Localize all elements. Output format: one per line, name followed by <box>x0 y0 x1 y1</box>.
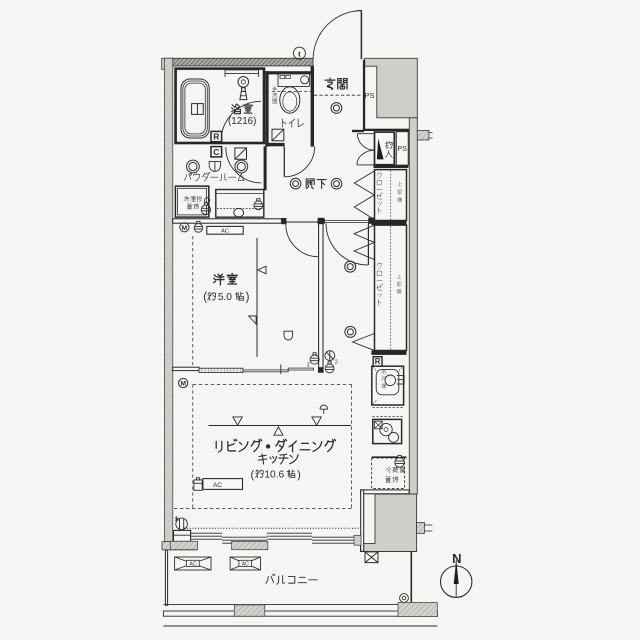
svg-text:AC: AC <box>221 229 229 235</box>
svg-text:M: M <box>182 225 188 232</box>
svg-text:AC: AC <box>213 482 222 489</box>
svg-text:(1216): (1216) <box>228 116 256 127</box>
svg-text:): ) <box>297 469 301 481</box>
svg-text:C: C <box>213 147 219 157</box>
svg-text:N: N <box>452 551 461 566</box>
svg-text:PS: PS <box>365 91 375 100</box>
svg-text:(: ( <box>250 469 254 481</box>
svg-text:(: ( <box>203 292 207 304</box>
svg-text:AC: AC <box>189 561 196 567</box>
svg-text:M: M <box>180 381 186 388</box>
svg-text:5.0: 5.0 <box>218 292 232 303</box>
svg-text:PS: PS <box>397 144 407 153</box>
svg-text:t: t <box>298 48 301 58</box>
svg-text:R: R <box>213 132 219 142</box>
svg-text:2: 2 <box>335 360 338 366</box>
svg-text:R: R <box>375 357 381 366</box>
svg-text:10.6: 10.6 <box>264 470 284 481</box>
svg-text:AC: AC <box>242 561 249 567</box>
svg-text:): ) <box>246 292 250 304</box>
svg-text:2: 2 <box>307 363 310 369</box>
